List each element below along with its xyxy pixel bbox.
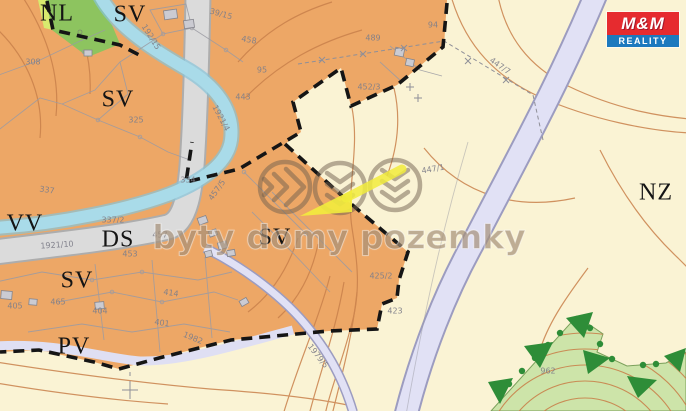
logo-reality-text: REALITY [618, 36, 667, 46]
logo-mm-text: M&M [621, 14, 665, 34]
mm-reality-logo: M&M REALITY [607, 12, 679, 47]
logo-red-band: M&M [607, 12, 679, 35]
map-canvas: NLSVSVVVDSSVPVSVNZ39/15192/153083251921/… [0, 0, 686, 411]
logo-blue-band: REALITY [607, 35, 679, 47]
map-artwork [0, 0, 686, 411]
